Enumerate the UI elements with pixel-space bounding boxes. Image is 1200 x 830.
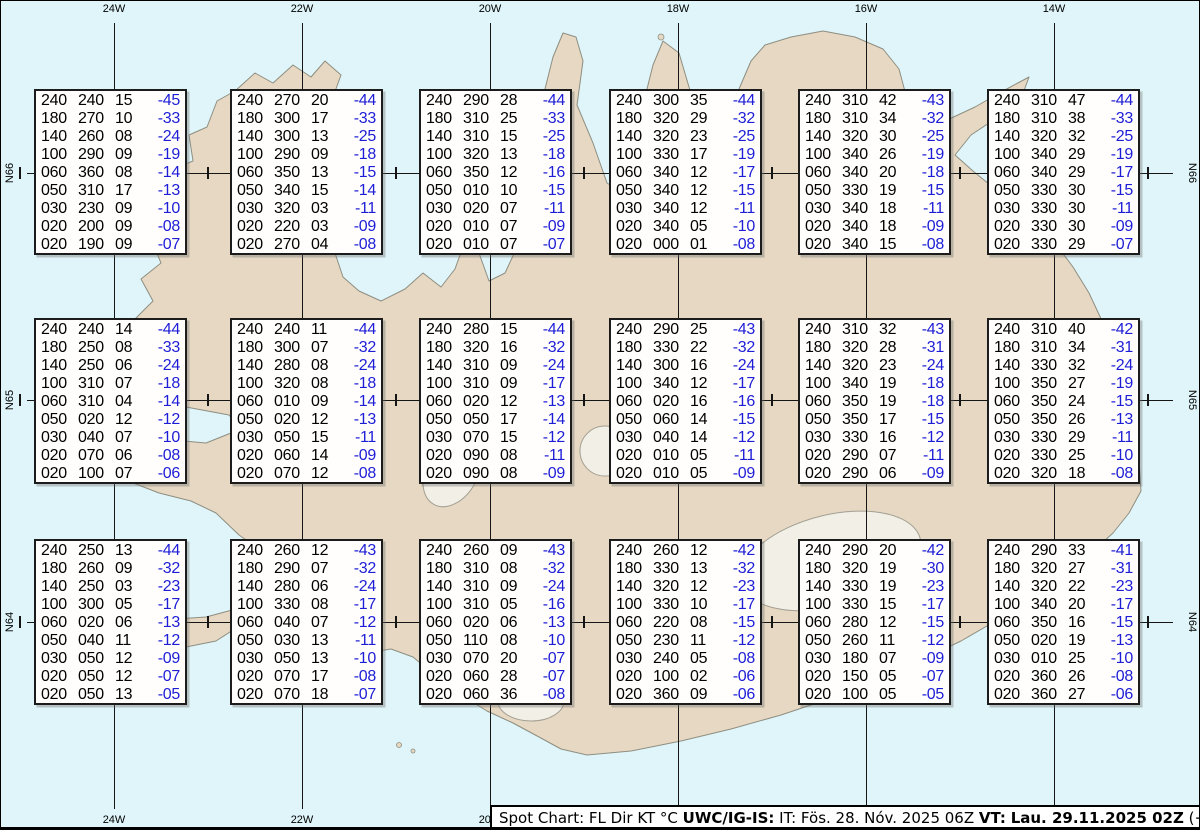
wind-speed-value: 25 (1068, 650, 1094, 668)
spot-row: 14032023-25 (616, 128, 756, 146)
spot-row: 05003013-11 (237, 632, 377, 650)
wind-dir-value: 330 (842, 182, 879, 200)
wind-speed-value: 09 (115, 236, 141, 254)
wind-speed-value: 07 (500, 236, 526, 254)
temp-value: -23 (141, 578, 181, 596)
wind-dir-value: 340 (842, 200, 879, 218)
temp-value: -13 (141, 614, 181, 632)
wind-dir-value: 330 (842, 596, 879, 614)
spot-row: 18030007-32 (237, 339, 377, 357)
temp-value: -14 (526, 411, 566, 429)
wind-speed-value: 06 (115, 447, 141, 465)
wind-dir-value: 310 (1031, 110, 1068, 128)
graticule-tick-cross (959, 394, 961, 406)
spot-row: 05002019-13 (994, 632, 1134, 650)
spot-row: 18032019-30 (805, 560, 945, 578)
fl-value: 050 (237, 182, 274, 200)
fl-value: 180 (41, 339, 78, 357)
temp-value: -11 (526, 447, 566, 465)
wind-dir-value: 270 (78, 110, 115, 128)
wind-dir-value: 350 (1031, 614, 1068, 632)
spot-row: 03018007-09 (805, 650, 945, 668)
status-text-segment: VT: (979, 809, 1006, 827)
temp-value: -13 (1094, 411, 1134, 429)
spot-row: 03005015-11 (237, 429, 377, 447)
fl-value: 100 (616, 596, 653, 614)
fl-value: 140 (994, 578, 1031, 596)
temp-value: -11 (1094, 429, 1134, 447)
wind-dir-value: 070 (274, 668, 311, 686)
spot-row: 02000001-08 (616, 236, 756, 254)
wind-dir-value: 320 (653, 110, 690, 128)
wind-speed-value: 20 (311, 92, 337, 110)
wind-dir-value: 340 (842, 218, 879, 236)
temp-value: -45 (141, 92, 181, 110)
spot-row: 02010005-05 (805, 686, 945, 704)
wind-dir-value: 290 (274, 146, 311, 164)
wind-dir-value: 020 (78, 614, 115, 632)
fl-value: 180 (616, 560, 653, 578)
wind-dir-value: 290 (842, 447, 879, 465)
temp-value: -07 (337, 686, 377, 704)
spot-row: 05034012-15 (616, 182, 756, 200)
fl-value: 240 (994, 542, 1031, 560)
spot-data-box: 24030035-4418032029-3214032023-251003301… (609, 89, 762, 255)
wind-dir-value: 260 (463, 542, 500, 560)
spot-row: 03007015-12 (426, 429, 566, 447)
spot-row: 06034020-18 (805, 164, 945, 182)
fl-value: 020 (426, 668, 463, 686)
temp-value: -32 (337, 339, 377, 357)
wind-speed-value: 05 (690, 465, 716, 483)
wind-dir-value: 320 (653, 128, 690, 146)
spot-row: 05002012-12 (41, 411, 181, 429)
temp-value: -25 (1094, 128, 1134, 146)
spot-row: 05011008-10 (426, 632, 566, 650)
spot-row: 02009008-11 (426, 447, 566, 465)
temp-value: -24 (905, 357, 945, 375)
wind-speed-value: 19 (879, 560, 905, 578)
wind-speed-value: 32 (1068, 357, 1094, 375)
wind-speed-value: 12 (311, 411, 337, 429)
wind-speed-value: 05 (879, 668, 905, 686)
fl-value: 180 (237, 339, 274, 357)
temp-value: -32 (141, 560, 181, 578)
spot-row: 24025013-44 (41, 542, 181, 560)
fl-value: 100 (41, 375, 78, 393)
spot-row: 24029025-43 (616, 321, 756, 339)
graticule-tick-cross (959, 167, 961, 179)
wind-dir-value: 100 (842, 686, 879, 704)
wind-dir-value: 060 (463, 686, 500, 704)
fl-value: 030 (237, 650, 274, 668)
spot-row: 02027004-08 (237, 236, 377, 254)
spot-data-box: 24031047-4418031038-3314032032-251003402… (987, 89, 1140, 255)
temp-value: -24 (526, 578, 566, 596)
temp-value: -16 (526, 164, 566, 182)
temp-value: -15 (905, 411, 945, 429)
longitude-label-top: 22W (291, 3, 314, 15)
fl-value: 060 (616, 614, 653, 632)
spot-row: 06035012-16 (426, 164, 566, 182)
wind-dir-value: 310 (463, 128, 500, 146)
wind-speed-value: 14 (311, 447, 337, 465)
wind-dir-value: 040 (78, 429, 115, 447)
wind-dir-value: 020 (653, 393, 690, 411)
temp-value: -24 (141, 128, 181, 146)
fl-value: 030 (237, 200, 274, 218)
fl-value: 020 (805, 447, 842, 465)
wind-speed-value: 16 (690, 393, 716, 411)
wind-speed-value: 13 (500, 146, 526, 164)
wind-speed-value: 09 (500, 357, 526, 375)
wind-dir-value: 300 (274, 110, 311, 128)
spot-row: 03004014-12 (616, 429, 756, 447)
wind-speed-value: 10 (500, 182, 526, 200)
temp-value: -06 (716, 686, 756, 704)
spot-row: 02006028-07 (426, 668, 566, 686)
fl-value: 020 (616, 218, 653, 236)
wind-speed-value: 12 (879, 614, 905, 632)
wind-dir-value: 330 (653, 596, 690, 614)
wind-speed-value: 30 (1068, 218, 1094, 236)
wind-speed-value: 17 (311, 668, 337, 686)
temp-value: -11 (905, 447, 945, 465)
spot-row: 10034012-17 (616, 375, 756, 393)
wind-dir-value: 010 (463, 218, 500, 236)
wind-dir-value: 220 (653, 614, 690, 632)
wind-speed-value: 14 (115, 321, 141, 339)
spot-row: 02032018-08 (994, 465, 1134, 483)
wind-speed-value: 02 (690, 668, 716, 686)
wind-speed-value: 33 (1068, 542, 1094, 560)
wind-dir-value: 320 (463, 146, 500, 164)
wind-dir-value: 280 (463, 321, 500, 339)
wind-speed-value: 40 (1068, 321, 1094, 339)
wind-speed-value: 36 (500, 686, 526, 704)
fl-value: 060 (426, 614, 463, 632)
wind-speed-value: 30 (879, 128, 905, 146)
fl-value: 240 (616, 321, 653, 339)
wind-dir-value: 320 (842, 357, 879, 375)
wind-dir-value: 250 (78, 339, 115, 357)
wind-speed-value: 09 (115, 560, 141, 578)
fl-value: 020 (41, 668, 78, 686)
temp-value: -18 (141, 375, 181, 393)
wind-speed-value: 17 (690, 146, 716, 164)
temp-value: -32 (716, 110, 756, 128)
fl-value: 100 (994, 375, 1031, 393)
spot-row: 18033022-32 (616, 339, 756, 357)
temp-value: -11 (716, 200, 756, 218)
fl-value: 180 (426, 110, 463, 128)
wind-dir-value: 300 (274, 339, 311, 357)
spot-row: 05033019-15 (805, 182, 945, 200)
wind-speed-value: 16 (690, 357, 716, 375)
wind-dir-value: 330 (1031, 182, 1068, 200)
fl-value: 060 (805, 164, 842, 182)
longitude-label-top: 20W (479, 3, 502, 15)
wind-speed-value: 08 (115, 339, 141, 357)
wind-speed-value: 10 (115, 110, 141, 128)
wind-speed-value: 14 (690, 411, 716, 429)
temp-value: -18 (905, 375, 945, 393)
fl-value: 020 (994, 686, 1031, 704)
wind-speed-value: 07 (879, 650, 905, 668)
spot-data-box: 24028015-4418032016-3214031009-241003100… (419, 318, 572, 484)
temp-value: -24 (337, 578, 377, 596)
temp-value: -32 (716, 339, 756, 357)
fl-value: 060 (805, 614, 842, 632)
spot-row: 24029020-42 (805, 542, 945, 560)
spot-row: 18029007-32 (237, 560, 377, 578)
graticule-tick-cross (207, 394, 209, 406)
temp-value: -14 (141, 393, 181, 411)
wind-speed-value: 03 (115, 578, 141, 596)
wind-dir-value: 330 (1031, 236, 1068, 254)
fl-value: 020 (237, 668, 274, 686)
fl-value: 100 (805, 596, 842, 614)
fl-value: 240 (237, 542, 274, 560)
graticule-tick-cross (771, 616, 773, 628)
temp-value: -17 (716, 375, 756, 393)
temp-value: -09 (337, 447, 377, 465)
fl-value: 020 (994, 447, 1031, 465)
wind-speed-value: 07 (115, 375, 141, 393)
wind-dir-value: 310 (463, 110, 500, 128)
wind-speed-value: 29 (1068, 164, 1094, 182)
fl-value: 060 (41, 164, 78, 182)
temp-value: -07 (1094, 236, 1134, 254)
fl-value: 240 (994, 92, 1031, 110)
wind-speed-value: 06 (311, 578, 337, 596)
wind-dir-value: 180 (842, 650, 879, 668)
spot-row: 14032030-25 (805, 128, 945, 146)
wind-dir-value: 110 (463, 632, 500, 650)
temp-value: -06 (716, 668, 756, 686)
spot-row: 05004011-12 (41, 632, 181, 650)
temp-value: -11 (337, 200, 377, 218)
wind-speed-value: 09 (500, 578, 526, 596)
status-text-segment: Lau. 29.11.2025 02Z (1011, 809, 1184, 827)
wind-speed-value: 12 (115, 650, 141, 668)
fl-value: 050 (994, 632, 1031, 650)
wind-speed-value: 12 (500, 393, 526, 411)
fl-value: 060 (616, 393, 653, 411)
wind-dir-value: 250 (78, 578, 115, 596)
wind-speed-value: 28 (500, 668, 526, 686)
temp-value: -15 (905, 614, 945, 632)
spot-row: 18031038-33 (994, 110, 1134, 128)
temp-value: -08 (337, 236, 377, 254)
wind-speed-value: 12 (311, 465, 337, 483)
wind-speed-value: 09 (690, 686, 716, 704)
fl-value: 050 (805, 182, 842, 200)
graticule-tick-cross (19, 394, 21, 406)
wind-speed-value: 20 (879, 542, 905, 560)
wind-speed-value: 14 (690, 429, 716, 447)
fl-value: 050 (426, 632, 463, 650)
latitude-label-right: N66 (1184, 158, 1198, 188)
temp-value: -23 (1094, 578, 1134, 596)
fl-value: 140 (426, 357, 463, 375)
wind-dir-value: 250 (78, 542, 115, 560)
graticule-tick-cross (1147, 167, 1149, 179)
temp-value: -13 (337, 411, 377, 429)
wind-speed-value: 22 (1068, 578, 1094, 596)
longitude-label-bottom: 22W (291, 814, 314, 826)
fl-value: 060 (805, 393, 842, 411)
wind-speed-value: 07 (500, 200, 526, 218)
wind-speed-value: 25 (500, 110, 526, 128)
temp-value: -42 (716, 542, 756, 560)
spot-row: 10034019-18 (805, 375, 945, 393)
temp-value: -08 (141, 447, 181, 465)
spot-row: 10032013-18 (426, 146, 566, 164)
temp-value: -09 (141, 650, 181, 668)
wind-speed-value: 13 (311, 650, 337, 668)
wind-speed-value: 07 (311, 560, 337, 578)
temp-value: -18 (905, 393, 945, 411)
wind-dir-value: 040 (653, 429, 690, 447)
fl-value: 020 (237, 447, 274, 465)
spot-row: 02036026-08 (994, 668, 1134, 686)
fl-value: 100 (616, 375, 653, 393)
wind-dir-value: 290 (842, 465, 879, 483)
spot-row: 14032012-23 (616, 578, 756, 596)
fl-value: 240 (805, 92, 842, 110)
wind-dir-value: 090 (463, 465, 500, 483)
spot-row: 05023011-12 (616, 632, 756, 650)
fl-value: 020 (805, 236, 842, 254)
temp-value: -11 (716, 447, 756, 465)
spot-row: 14032022-23 (994, 578, 1134, 596)
spot-row: 02001007-09 (426, 218, 566, 236)
spot-row: 03033029-11 (994, 429, 1134, 447)
wind-speed-value: 17 (879, 411, 905, 429)
wind-dir-value: 020 (274, 411, 311, 429)
wind-dir-value: 360 (653, 686, 690, 704)
wind-dir-value: 240 (653, 650, 690, 668)
wind-dir-value: 100 (653, 668, 690, 686)
temp-value: -44 (141, 542, 181, 560)
wind-speed-value: 28 (879, 339, 905, 357)
temp-value: -08 (1094, 668, 1134, 686)
spot-row: 05033030-15 (994, 182, 1134, 200)
wind-speed-value: 09 (115, 200, 141, 218)
wind-dir-value: 220 (274, 218, 311, 236)
wind-dir-value: 070 (274, 686, 311, 704)
longitude-label-top: 18W (667, 3, 690, 15)
wind-dir-value: 350 (842, 393, 879, 411)
wind-speed-value: 09 (500, 375, 526, 393)
wind-speed-value: 10 (690, 596, 716, 614)
spot-row: 02006036-08 (426, 686, 566, 704)
fl-value: 140 (41, 128, 78, 146)
temp-value: -07 (141, 236, 181, 254)
wind-speed-value: 13 (311, 164, 337, 182)
temp-value: -24 (337, 357, 377, 375)
wind-speed-value: 08 (311, 596, 337, 614)
graticule-tick-cross (207, 616, 209, 628)
spot-row: 18031008-32 (426, 560, 566, 578)
wind-dir-value: 350 (1031, 393, 1068, 411)
wind-dir-value: 010 (463, 182, 500, 200)
wind-dir-value: 050 (463, 411, 500, 429)
temp-value: -43 (905, 321, 945, 339)
temp-value: -17 (716, 596, 756, 614)
spot-row: 10033017-19 (616, 146, 756, 164)
temp-value: -08 (337, 668, 377, 686)
temp-value: -32 (526, 560, 566, 578)
spot-data-box: 24024015-4518027010-3314026008-241002900… (34, 89, 187, 255)
spot-row: 02022003-09 (237, 218, 377, 236)
temp-value: -08 (1094, 465, 1134, 483)
spot-data-box: 24031040-4218031034-3114033032-241003502… (987, 318, 1140, 484)
spot-row: 03007020-07 (426, 650, 566, 668)
wind-speed-value: 17 (500, 411, 526, 429)
wind-speed-value: 08 (500, 447, 526, 465)
temp-value: -32 (526, 339, 566, 357)
wind-speed-value: 22 (690, 339, 716, 357)
wind-dir-value: 150 (842, 668, 879, 686)
wind-speed-value: 20 (500, 650, 526, 668)
wind-dir-value: 340 (653, 200, 690, 218)
temp-value: -06 (1094, 686, 1134, 704)
fl-value: 140 (237, 357, 274, 375)
temp-value: -19 (716, 146, 756, 164)
wind-dir-value: 340 (1031, 164, 1068, 182)
wind-speed-value: 13 (311, 632, 337, 650)
spot-row: 02010002-06 (616, 668, 756, 686)
wind-dir-value: 280 (842, 614, 879, 632)
latitude-label-left: N66 (4, 158, 18, 188)
temp-value: -12 (141, 411, 181, 429)
fl-value: 020 (805, 465, 842, 483)
temp-value: -33 (526, 110, 566, 128)
wind-dir-value: 300 (653, 357, 690, 375)
temp-value: -06 (141, 465, 181, 483)
wind-dir-value: 310 (463, 596, 500, 614)
wind-dir-value: 240 (78, 321, 115, 339)
graticule-tick-cross (207, 167, 209, 179)
fl-value: 030 (994, 650, 1031, 668)
graticule-tick-cross (583, 616, 585, 628)
spot-row: 24024014-44 (41, 321, 181, 339)
temp-value: -09 (905, 650, 945, 668)
temp-value: -44 (526, 92, 566, 110)
spot-data-box: 24029020-4218032019-3014033019-231003301… (798, 539, 951, 705)
spot-row: 03034018-11 (805, 200, 945, 218)
wind-dir-value: 050 (78, 668, 115, 686)
fl-value: 140 (805, 128, 842, 146)
temp-value: -11 (905, 200, 945, 218)
fl-value: 180 (616, 110, 653, 128)
fl-value: 180 (994, 339, 1031, 357)
wind-dir-value: 320 (1031, 465, 1068, 483)
wind-dir-value: 360 (1031, 668, 1068, 686)
wind-speed-value: 15 (500, 321, 526, 339)
wind-speed-value: 15 (115, 92, 141, 110)
wind-dir-value: 310 (463, 578, 500, 596)
wind-dir-value: 320 (274, 375, 311, 393)
wind-dir-value: 290 (78, 146, 115, 164)
spot-row: 14032023-24 (805, 357, 945, 375)
wind-speed-value: 07 (311, 339, 337, 357)
fl-value: 060 (426, 164, 463, 182)
wind-speed-value: 08 (500, 632, 526, 650)
wind-dir-value: 100 (78, 465, 115, 483)
